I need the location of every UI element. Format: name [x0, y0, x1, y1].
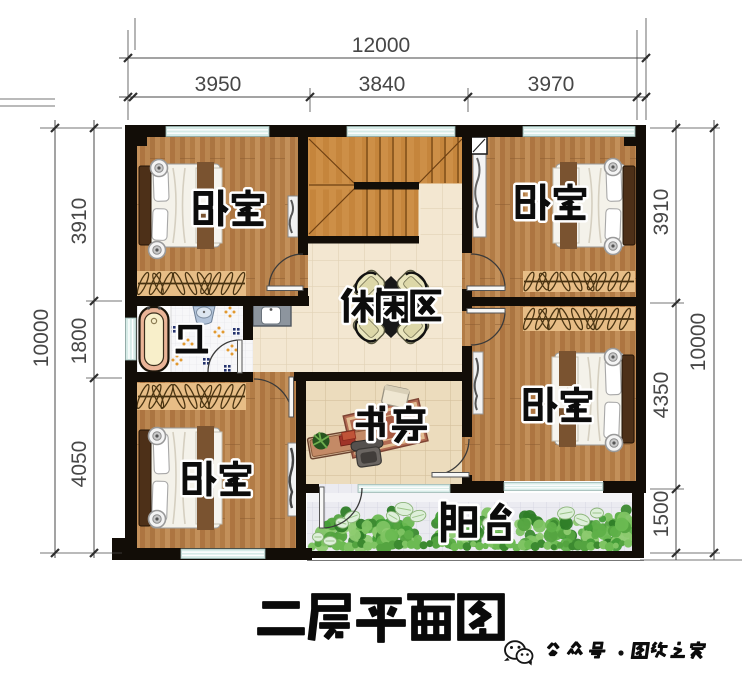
svg-text:3840: 3840 — [359, 73, 406, 96]
svg-text:4050: 4050 — [68, 441, 91, 488]
svg-text:3970: 3970 — [528, 73, 575, 96]
svg-text:1500: 1500 — [650, 491, 673, 538]
svg-text:3910: 3910 — [650, 189, 673, 236]
svg-text:10000: 10000 — [687, 313, 710, 371]
svg-text:1800: 1800 — [68, 318, 91, 365]
svg-text:4350: 4350 — [650, 372, 673, 419]
svg-text:10000: 10000 — [30, 309, 53, 367]
svg-text:3910: 3910 — [68, 198, 91, 245]
svg-text:12000: 12000 — [352, 34, 410, 57]
svg-text:3950: 3950 — [195, 73, 242, 96]
